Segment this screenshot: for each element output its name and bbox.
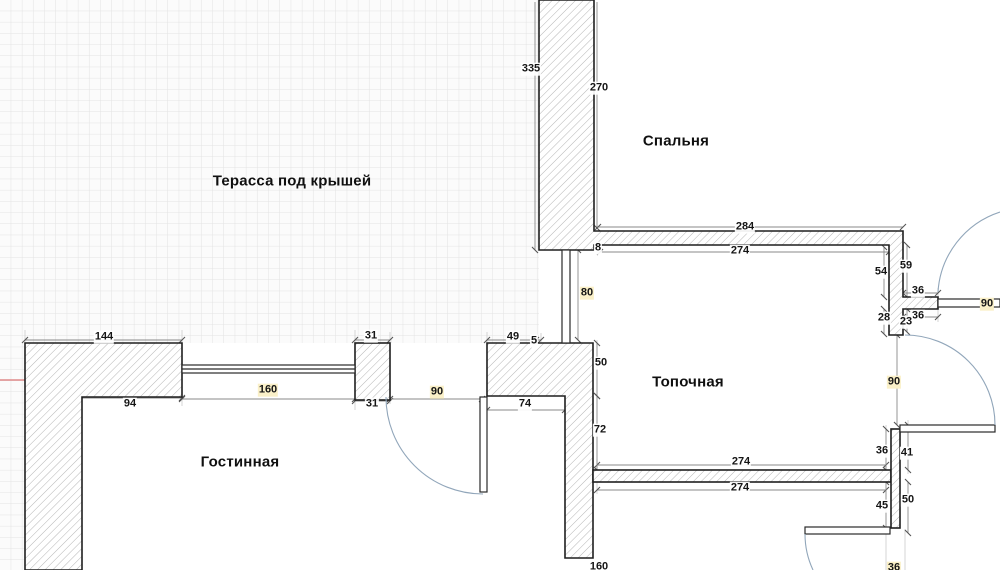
dim-label-31-bottom: 31 <box>365 398 379 411</box>
room-label-boiler: Топочная <box>652 374 724 391</box>
dim-label-160-window[interactable]: 160 <box>258 384 278 397</box>
dim-label-80[interactable]: 80 <box>580 287 594 300</box>
dim-label-54: 54 <box>874 266 888 279</box>
room-label-bedroom: Спальня <box>643 133 709 150</box>
dim-label-270: 270 <box>589 82 609 95</box>
dim-label-8: 8 <box>594 242 602 255</box>
dim-label-274-mid-upper: 274 <box>731 456 751 469</box>
wall-center-block <box>487 343 593 558</box>
dim-label-36-sill-top: 36 <box>911 285 925 298</box>
dim-label-36-right-wall: 36 <box>875 445 889 458</box>
dim-label-90-top-right[interactable]: 90 <box>980 298 994 311</box>
wall-boiler-bottom <box>593 470 891 482</box>
wall-right-lower <box>891 429 900 528</box>
dim-label-23: 23 <box>899 316 913 329</box>
dim-label-74: 74 <box>518 398 532 411</box>
door-arc-mid-right <box>905 335 995 425</box>
dim-label-45: 45 <box>875 500 889 513</box>
dim-label-144: 144 <box>94 331 114 344</box>
dim-label-31-top: 31 <box>364 330 378 343</box>
dim-label-160-bottom: 160 <box>589 561 609 570</box>
room-label-terrace: Терасса под крышей <box>213 173 372 190</box>
dim-label-5: 5 <box>530 335 538 348</box>
dim-label-36-bottom[interactable]: 36 <box>887 562 901 570</box>
floor-plan: Терасса под крышей Спальня Топочная Гост… <box>0 0 1000 570</box>
dim-label-90-living-door[interactable]: 90 <box>430 386 444 399</box>
floor-plan-drawing <box>0 0 1000 570</box>
dim-label-72: 72 <box>593 424 607 437</box>
dim-label-94: 94 <box>123 398 137 411</box>
dim-label-274-top: 274 <box>730 245 750 258</box>
dim-label-335: 335 <box>521 63 541 76</box>
dim-label-90-mid-right[interactable]: 90 <box>887 376 901 389</box>
dim-label-59: 59 <box>899 260 913 273</box>
dim-label-50-boiler: 50 <box>594 357 608 370</box>
wall-pier <box>355 343 390 400</box>
door-leaf-mid-right <box>900 425 995 432</box>
dim-label-274-mid-lower: 274 <box>730 482 750 495</box>
door-arc-top-right <box>938 212 1000 292</box>
door-leaf-bottom-right <box>805 527 890 534</box>
dim-label-50-right-wall: 50 <box>901 494 915 507</box>
partition-8cm <box>562 250 570 343</box>
dim-label-284: 284 <box>735 221 755 234</box>
door-leaf-living <box>480 397 487 492</box>
door-arc-bottom-right <box>805 534 813 570</box>
door-arc-living <box>386 397 483 494</box>
room-label-living: Гостинная <box>201 454 280 471</box>
dim-label-49: 49 <box>506 331 520 344</box>
wall-top-complex <box>539 0 938 335</box>
wall-left-l-shape <box>25 343 182 570</box>
dim-label-28: 28 <box>877 312 891 325</box>
dim-label-41: 41 <box>900 447 914 460</box>
